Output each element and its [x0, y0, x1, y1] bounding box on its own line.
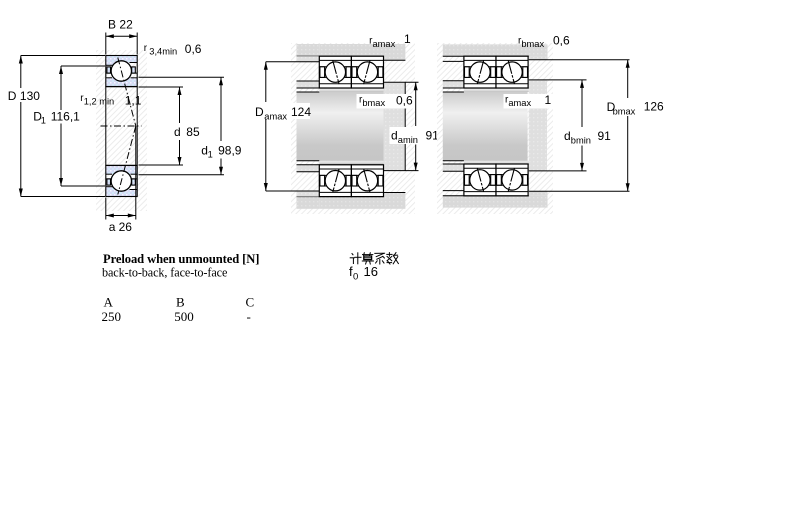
- svg-text:d: d: [564, 129, 571, 143]
- svg-text:1,1: 1,1: [125, 94, 142, 108]
- svg-text:1: 1: [41, 115, 46, 125]
- svg-text:A: A: [104, 295, 114, 310]
- svg-text:D: D: [255, 105, 264, 119]
- svg-text:0,6: 0,6: [396, 94, 413, 108]
- svg-text:bmax: bmax: [362, 98, 385, 108]
- svg-text:0: 0: [353, 272, 358, 283]
- svg-text:0,6: 0,6: [185, 42, 202, 56]
- svg-text:bmax: bmax: [521, 39, 544, 49]
- svg-text:amax: amax: [508, 98, 531, 108]
- svg-text:130: 130: [20, 89, 40, 103]
- svg-text:3,4min: 3,4min: [149, 46, 177, 56]
- svg-text:back-to-back, face-to-face: back-to-back, face-to-face: [102, 266, 227, 280]
- svg-text:1,2 min: 1,2 min: [84, 97, 115, 107]
- svg-text:91: 91: [598, 129, 612, 143]
- svg-text:26: 26: [119, 220, 133, 234]
- svg-text:amin: amin: [398, 135, 418, 145]
- svg-text:bmin: bmin: [571, 135, 591, 145]
- svg-text:D: D: [8, 89, 17, 103]
- svg-text:amax: amax: [264, 112, 287, 122]
- svg-text:250: 250: [102, 309, 122, 324]
- svg-text:-: -: [247, 309, 251, 324]
- svg-text:bmax: bmax: [613, 107, 636, 117]
- svg-text:d: d: [174, 125, 181, 139]
- svg-text:22: 22: [119, 18, 133, 32]
- svg-text:124: 124: [291, 105, 311, 119]
- svg-text:d: d: [391, 128, 398, 142]
- svg-text:126: 126: [644, 100, 664, 114]
- svg-text:1: 1: [208, 149, 213, 159]
- svg-text:16: 16: [364, 264, 378, 279]
- svg-text:a: a: [109, 220, 116, 234]
- svg-text:1: 1: [404, 32, 411, 46]
- svg-text:85: 85: [186, 125, 200, 139]
- svg-text:0,6: 0,6: [553, 34, 570, 48]
- svg-text:500: 500: [174, 309, 194, 324]
- svg-text:98,9: 98,9: [218, 143, 242, 157]
- svg-text:116,1: 116,1: [51, 109, 80, 123]
- svg-text:Preload when unmounted [N]: Preload when unmounted [N]: [103, 252, 259, 266]
- svg-text:amax: amax: [373, 39, 396, 49]
- svg-text:C: C: [246, 295, 255, 310]
- svg-text:B: B: [108, 18, 116, 32]
- svg-text:1: 1: [545, 93, 552, 107]
- svg-text:B: B: [176, 295, 185, 310]
